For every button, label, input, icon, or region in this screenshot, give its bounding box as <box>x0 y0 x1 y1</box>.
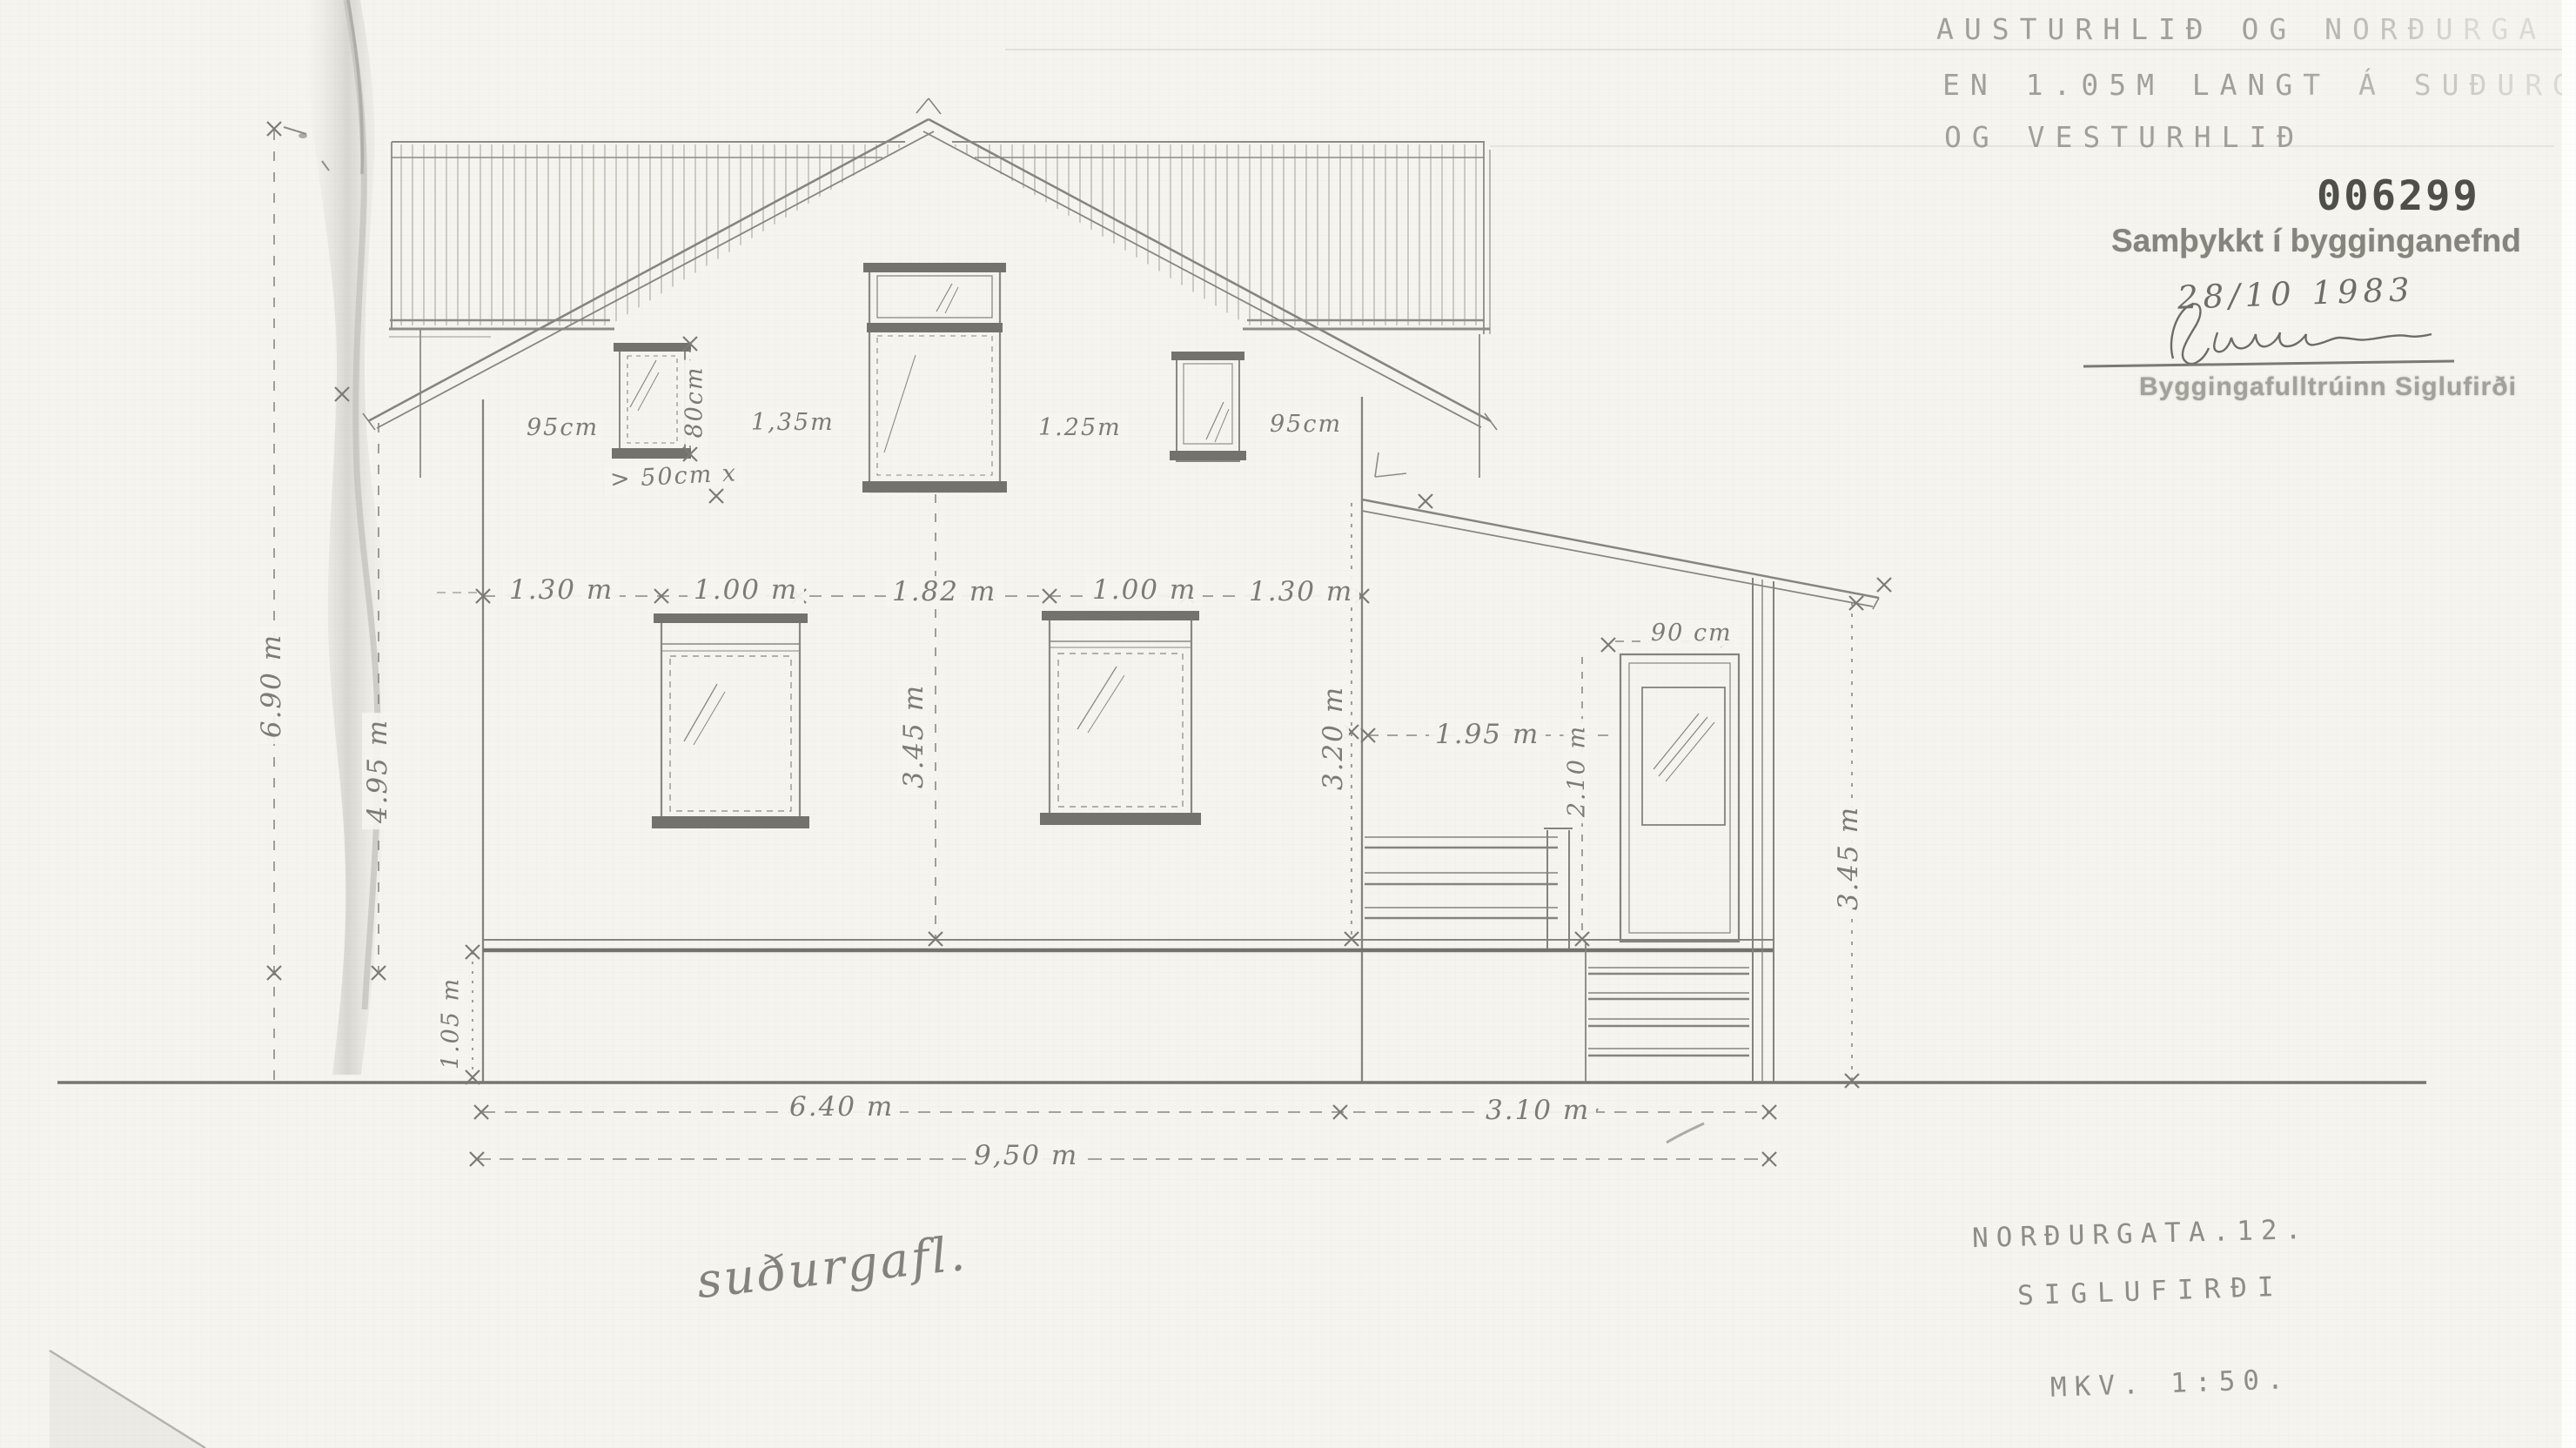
dim-plinth-height: 1.05 m <box>451 1023 555 1050</box>
dim-gable-left: 95cm <box>520 414 605 441</box>
dim-win-a: 1.00 m <box>688 574 804 606</box>
dim-floor-height: 3.45 m <box>914 736 1030 768</box>
dim-gable-window-height: 80cm <box>694 402 779 429</box>
dim-wall-b: 1.82 m <box>886 576 1003 607</box>
dim-gable-mid-right: 1.25m <box>1032 414 1128 441</box>
entrance-stairs <box>1586 943 1749 1082</box>
dim-wall-height: 4.95 m <box>378 771 494 802</box>
gable-window-left <box>612 343 691 459</box>
dim-porch-width: 1.95 m <box>1429 719 1546 750</box>
scan-right-margin <box>2562 0 2576 1448</box>
porch-corner-post <box>1753 578 1774 1082</box>
building-officer-stamp-text: Byggingafulltrúinn Siglufirði <box>2139 372 2517 402</box>
dim-bottom-porch: 3.10 m <box>1479 1095 1596 1126</box>
top-note-line3: OG VESTURHLIÐ <box>1944 120 2304 154</box>
dim-win-b: 1.00 m <box>1086 574 1203 606</box>
lower-window-left <box>652 613 809 828</box>
dim-wall-a: 1.30 m <box>503 574 620 606</box>
torn-paper-edge <box>305 0 390 1075</box>
porch-roof <box>1362 499 1879 609</box>
dim-bottom-total: 9,50 m <box>968 1140 1084 1171</box>
approved-stamp-text: Samþykkt í bygginganefnd <box>2111 223 2521 259</box>
folded-corner <box>50 1351 205 1448</box>
gable-window-center <box>862 263 1007 493</box>
document-number-stamp: 006299 <box>2317 172 2480 220</box>
porch-railing <box>1365 828 1573 949</box>
dim-porch-height: 3.45 m <box>1848 858 1965 889</box>
dim-wall-c: 1.30 m <box>1243 576 1359 607</box>
entrance-door <box>1620 654 1739 942</box>
lower-window-right <box>1040 611 1201 825</box>
gable-window-right <box>1170 352 1246 461</box>
dim-gable-right: 95cm <box>1264 411 1348 438</box>
scanned-blueprint-sheet: { "sheet": { "view_label": "suðurgafl.",… <box>0 0 2576 1448</box>
dim-bottom-main: 6.40 m <box>783 1091 900 1123</box>
door-glass <box>1642 687 1725 825</box>
plinth-and-ground <box>57 940 2426 1083</box>
top-note-line1: AUSTURHLIÐ OG NORÐURGA <box>1936 12 2546 46</box>
dim-door-width: 90 cm <box>1645 620 1739 647</box>
dim-door-height: 2.10 m <box>1577 771 1681 798</box>
top-note-line2: EN 1.05M LANGT Á SUÐURGA <box>1942 68 2576 102</box>
